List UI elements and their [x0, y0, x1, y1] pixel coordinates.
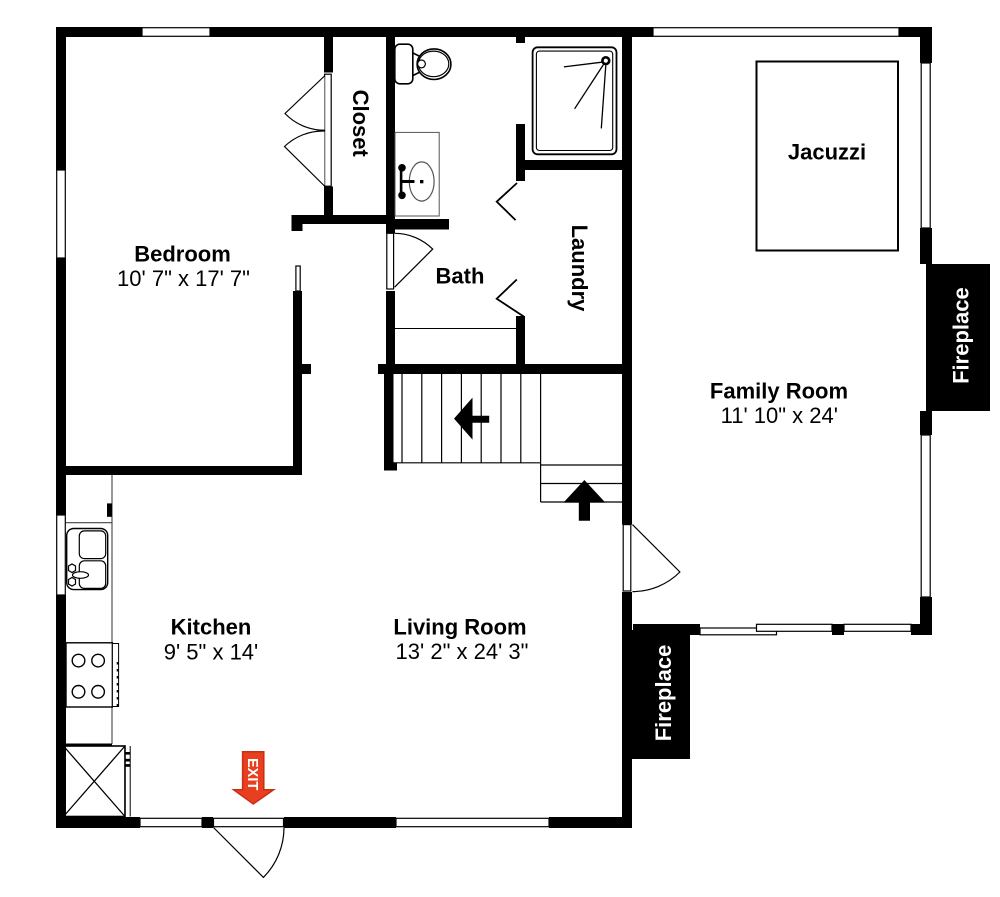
svg-text:Laundry: Laundry — [567, 225, 592, 313]
svg-text:Jacuzzi: Jacuzzi — [788, 140, 866, 165]
svg-text:Living Room: Living Room — [393, 615, 526, 640]
svg-text:Family Room: Family Room — [710, 379, 848, 404]
svg-text:Fireplace: Fireplace — [949, 287, 974, 384]
svg-text:Kitchen: Kitchen — [171, 615, 252, 640]
svg-text:Closet: Closet — [348, 90, 373, 158]
svg-text:Bedroom: Bedroom — [134, 242, 231, 267]
svg-text:9' 5" x 14': 9' 5" x 14' — [164, 639, 259, 664]
svg-text:10' 7" x 17' 7": 10' 7" x 17' 7" — [117, 266, 250, 291]
svg-text:Bath: Bath — [436, 264, 485, 289]
svg-text:Fireplace: Fireplace — [651, 645, 676, 742]
svg-text:EXIT: EXIT — [244, 758, 260, 790]
svg-text:13' 2" x 24' 3": 13' 2" x 24' 3" — [396, 639, 529, 664]
svg-text:11' 10" x 24': 11' 10" x 24' — [721, 403, 838, 428]
